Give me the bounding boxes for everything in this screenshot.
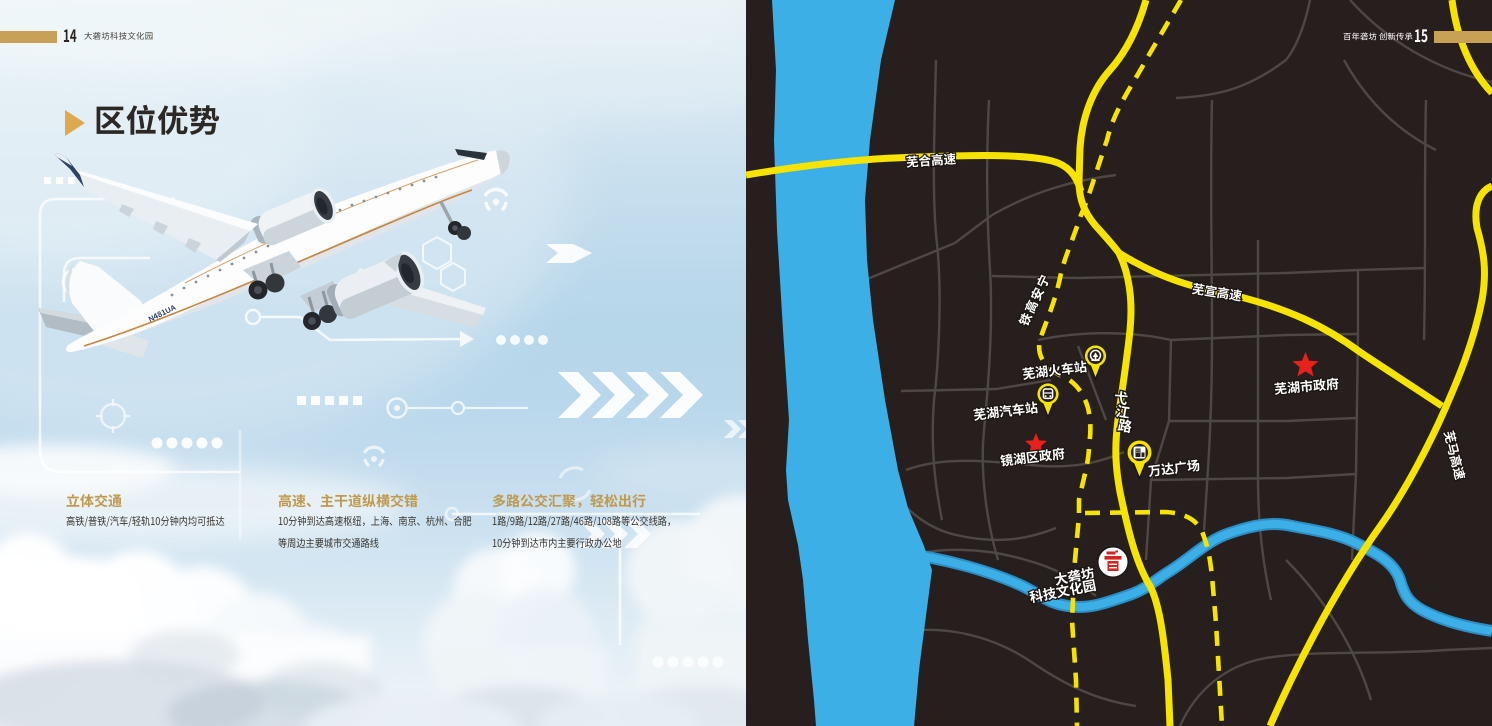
- svg-text:百年砻坊 创新传承: 百年砻坊 创新传承: [1343, 31, 1414, 43]
- svg-text:芜合高速: 芜合高速: [905, 148, 957, 170]
- svg-text:15: 15: [1414, 23, 1428, 47]
